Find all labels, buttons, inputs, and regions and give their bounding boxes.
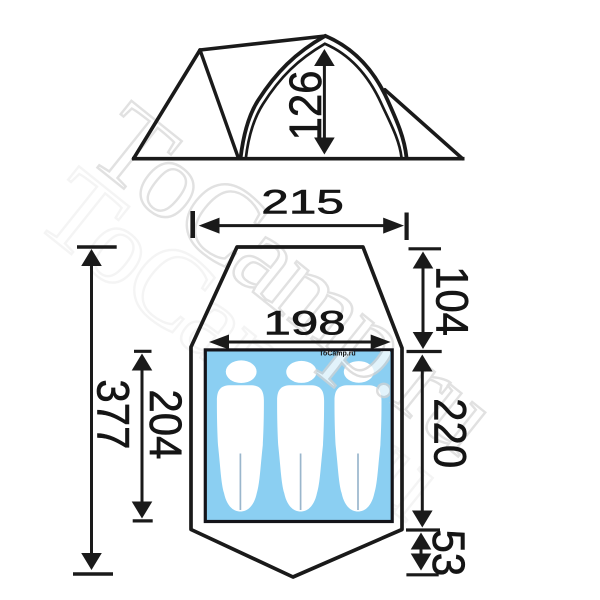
svg-text:204: 204 <box>139 389 190 459</box>
svg-text:377: 377 <box>87 379 138 449</box>
svg-text:104: 104 <box>426 266 477 336</box>
svg-text:ToCamp.ru: ToCamp.ru <box>319 351 355 358</box>
svg-text:53: 53 <box>422 530 473 577</box>
svg-text:215: 215 <box>261 183 344 221</box>
svg-text:220: 220 <box>424 398 475 468</box>
svg-text:198: 198 <box>263 304 345 342</box>
svg-text:126: 126 <box>280 70 331 140</box>
